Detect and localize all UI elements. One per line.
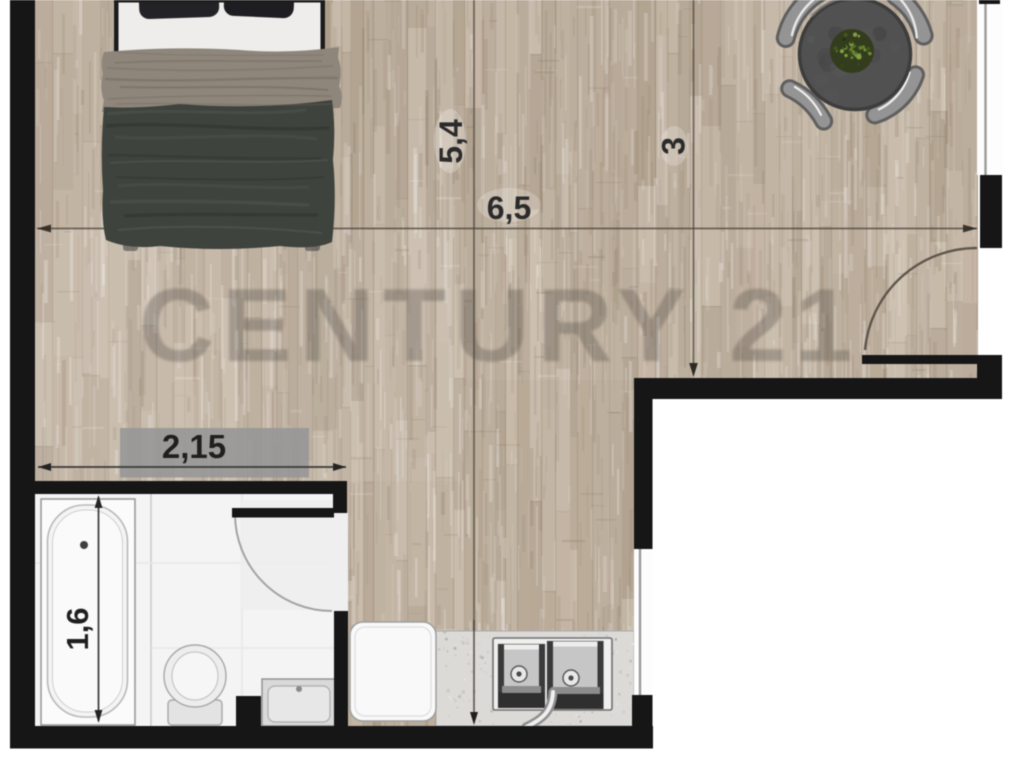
svg-text:CENTURY 21: CENTURY 21 [139,268,861,384]
svg-text:2,15: 2,15 [162,428,226,465]
svg-text:1,6: 1,6 [60,607,95,650]
svg-text:3: 3 [656,137,692,155]
svg-text:5,4: 5,4 [433,119,469,164]
svg-text:6,5: 6,5 [487,190,531,226]
